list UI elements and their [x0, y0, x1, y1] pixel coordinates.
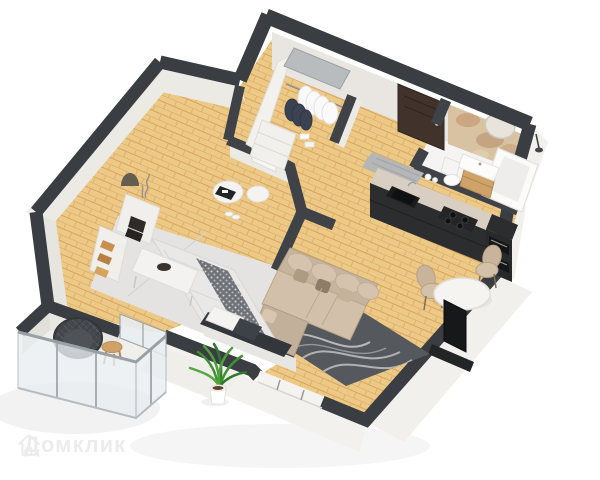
plant-pot [210, 385, 226, 404]
pouf [213, 181, 243, 203]
watermark: Домклик [16, 432, 126, 458]
decor-bowl [157, 263, 171, 271]
floorplan-3d-render: Домклик [0, 0, 600, 480]
floorplan-scene [0, 0, 600, 480]
pouf [247, 186, 269, 202]
